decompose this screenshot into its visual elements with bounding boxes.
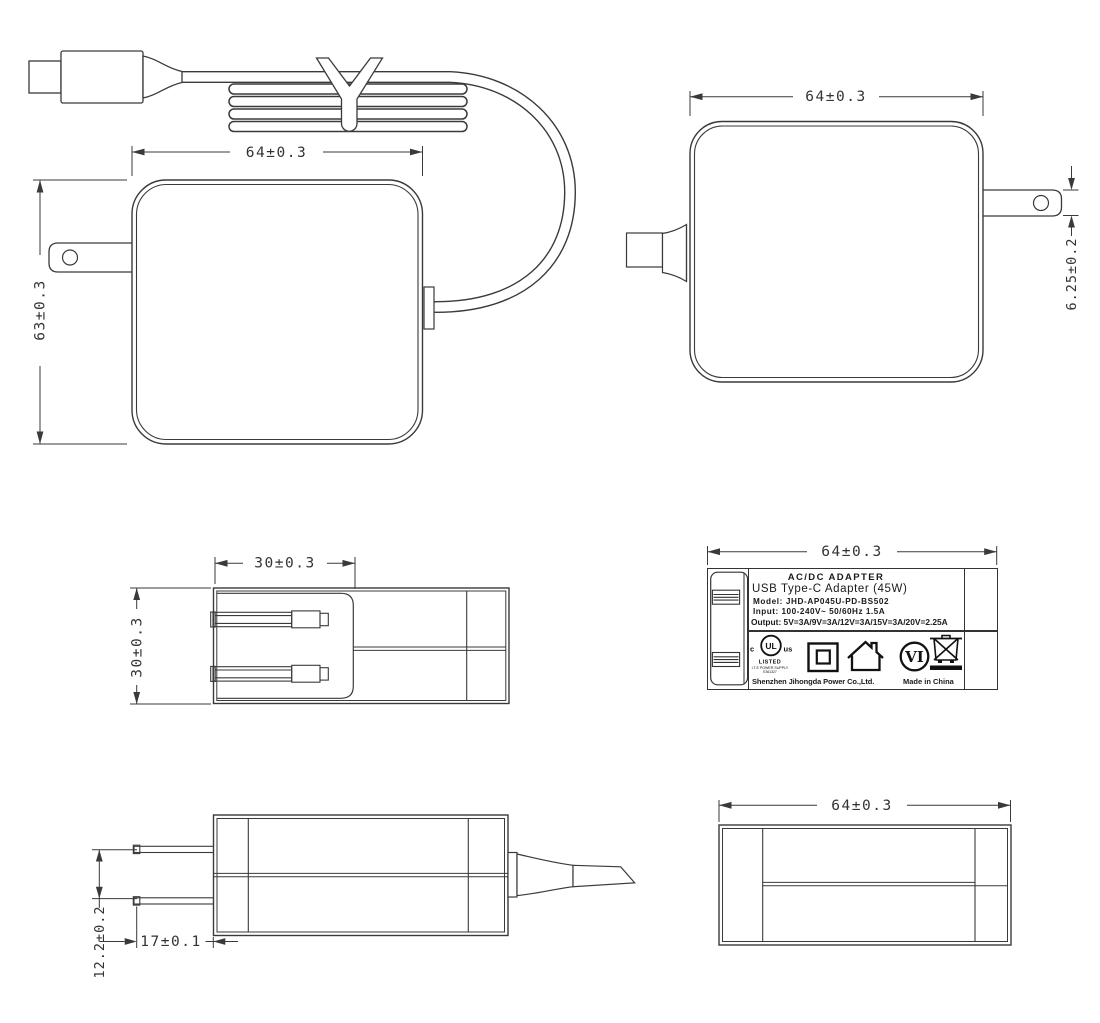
label-input: Input: 100-240V~ 50/60Hz 1.5A <box>753 607 885 616</box>
ac-pin-side <box>133 845 214 905</box>
view-bottom: 64±0.3 <box>719 798 1011 945</box>
dim-top-body-thickness: 30±0.3 <box>129 616 145 677</box>
svg-text:VI: VI <box>904 648 924 666</box>
label-product: USB Type-C Adapter (45W) <box>752 583 907 595</box>
drawing-sheet: 64±0.3 63±0.3 64±0.3 <box>0 0 1100 1023</box>
body-outline <box>214 588 510 704</box>
dim-front-height: 63±0.3 <box>33 279 49 340</box>
label-manufacturer: Shenzhen Jihongda Power Co.,Ltd. <box>752 677 874 686</box>
label-output: Output: 5V=3A/9V=3A/12V=3A/15V=3A/20V=2.… <box>751 617 948 627</box>
svg-text:c: c <box>750 645 754 654</box>
label-title: AC/DC ADAPTER <box>708 572 964 583</box>
dim-rear-width: 64±0.3 <box>805 89 866 105</box>
rating-label: AC/DC ADAPTER USB Type-C Adapter (45W) M… <box>707 568 998 690</box>
label-model: Model: JHD-AP045U-PD-BS502 <box>753 597 889 606</box>
view-top: 30±0.3 30±0.3 <box>129 556 509 704</box>
adapter-technical-drawing: 64±0.3 63±0.3 64±0.3 <box>0 0 1100 1023</box>
ac-pin <box>49 243 133 272</box>
label-origin: Made in China <box>903 677 954 686</box>
usb-c-overmold <box>61 51 143 103</box>
folded-pin-edge <box>712 590 739 604</box>
weee-bin-icon <box>927 631 965 672</box>
usb-c-connector <box>29 51 182 103</box>
dim-bottom-width: 64±0.3 <box>831 798 892 814</box>
adapter-body <box>690 122 983 383</box>
cable-exit <box>508 853 635 898</box>
dim-top-plug-depth: 30±0.3 <box>254 556 315 572</box>
dim-label-width: 64±0.3 <box>821 544 882 560</box>
dimension-pin-spacing <box>92 850 137 908</box>
svg-text:LISTED: LISTED <box>759 660 782 666</box>
svg-text:us: us <box>784 645 793 654</box>
usb-c-strain-relief <box>143 56 182 98</box>
class-ii-icon <box>807 642 840 673</box>
usb-c-tip <box>29 61 61 93</box>
dim-pin-length: 17±0.1 <box>140 934 201 950</box>
ac-pin <box>982 190 1062 216</box>
svg-text:UL: UL <box>765 641 776 651</box>
body-outline <box>214 815 509 936</box>
dim-rear-pin-thickness: 6.25±0.2 <box>1064 237 1080 310</box>
label-pin-column <box>709 571 750 687</box>
indoor-use-icon <box>845 640 887 672</box>
rear-cable-boot <box>627 225 687 282</box>
dim-front-width: 64±0.3 <box>246 145 307 161</box>
folded-pin-edge <box>712 653 739 667</box>
view-front-with-cable: 64±0.3 63±0.3 <box>29 51 570 444</box>
adapter-body <box>132 180 423 444</box>
svg-text:E361327: E361327 <box>763 670 777 674</box>
ul-listed-icon: UL c us LISTED I.T.E POWER SUPPLY E36132… <box>746 633 800 677</box>
cable-port <box>424 287 434 329</box>
dimension-rear-pin <box>1063 166 1079 236</box>
cut-cable-tip <box>573 865 635 886</box>
view-rear: 64±0.3 6.25±0.2 <box>627 89 1081 382</box>
view-side: 12.2±0.2 17±0.1 <box>92 815 635 979</box>
